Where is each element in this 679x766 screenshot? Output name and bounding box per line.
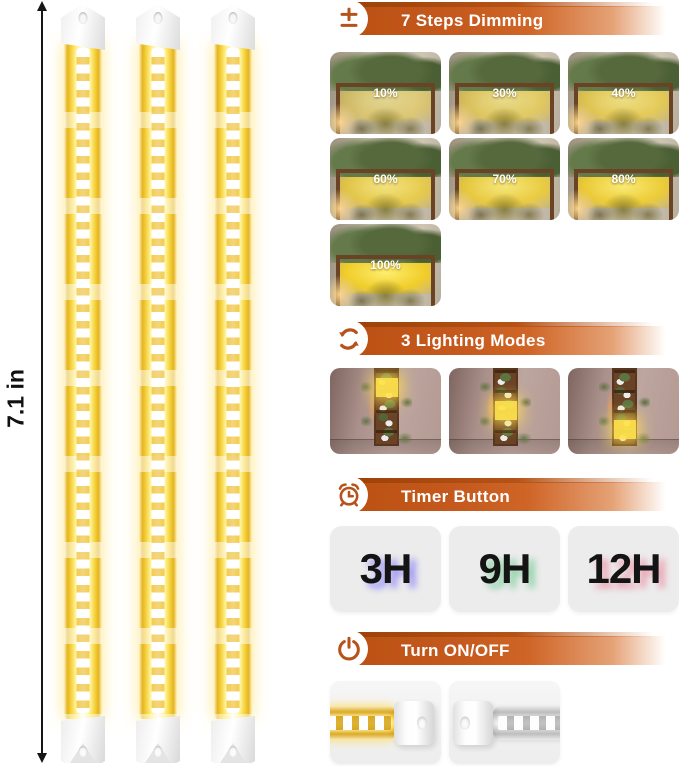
dim-percent-label: 60% [330,172,441,186]
plus-minus-icon [330,0,368,38]
section-title: 3 Lighting Modes [401,331,546,351]
led-tube [139,42,177,719]
dimming-thumb: 100% [330,224,441,306]
section-header-timer: Timer Button [330,478,679,511]
header-banner: 3 Lighting Modes [345,326,679,355]
header-banner: Timer Button [345,482,679,511]
mode-thumb-top-lit [330,368,441,454]
timer-option-9h: 9H [449,526,560,612]
bar-closeup-off [493,706,560,740]
dimming-thumb: 60% [330,138,441,220]
led-bar [136,4,180,763]
bar-top-cap [211,4,255,50]
section-header-power: Turn ON/OFF [330,632,679,665]
mode-thumbnails [330,368,679,454]
dimming-thumb: 10% [330,52,441,134]
mode-thumb-middle-lit [449,368,560,454]
dimming-thumb: 70% [449,138,560,220]
mounting-hole [154,12,163,24]
lit-shelf-section [614,420,636,439]
bar-top-cap [136,4,180,50]
mounting-hole [79,746,88,757]
power-thumb-off [449,681,560,764]
led-tube [214,42,252,719]
section-header-modes: 3 Lighting Modes [330,322,679,355]
dim-percent-label: 10% [330,86,441,100]
header-banner: 7 Steps Dimming [345,6,679,35]
dim-percent-label: 80% [568,172,679,186]
mounting-hole [229,12,238,24]
dimming-thumb: 30% [449,52,560,134]
power-thumb-on [330,681,441,764]
mounting-hole [79,12,88,24]
dim-percent-label: 30% [449,86,560,100]
section-title: Turn ON/OFF [401,641,510,661]
dimming-thumbnails: 10% 30% 40% 60% 70% 80% [330,52,679,306]
section-title: Timer Button [401,487,510,507]
led-bar [61,4,105,763]
bar-bottom-cap [136,716,180,763]
mounting-hole [154,746,163,757]
lit-shelf-section [376,378,398,397]
mounting-hole [417,716,427,729]
header-banner: Turn ON/OFF [345,636,679,665]
section-title: 7 Steps Dimming [401,11,543,31]
timer-label: 12H [586,545,660,593]
dimming-thumb: 80% [568,138,679,220]
timer-label: 9H [479,545,531,593]
mode-thumb-bottom-lit [568,368,679,454]
timer-option-12h: 12H [568,526,679,612]
led-strip [77,48,90,713]
led-strip [227,48,240,713]
led-chips [330,716,391,730]
dimension-arrow [41,10,43,754]
led-strip [152,48,165,713]
cycle-arrows-icon [330,320,368,358]
features-panel: 7 Steps Dimming 10% 30% 40% [330,0,679,764]
dim-percent-label: 70% [449,172,560,186]
dimension-label: 7.1 in [3,356,30,442]
led-tube [64,42,102,719]
section-header-dimming: 7 Steps Dimming [330,2,679,35]
dimming-thumb: 40% [568,52,679,134]
dim-percent-label: 100% [330,258,441,272]
bar-bottom-cap [61,716,105,763]
bar-end-cap [394,701,434,745]
lit-shelf-section [495,401,517,420]
bar-closeup-on [330,706,396,740]
product-panel: 7.1 in [0,0,330,766]
bar-end-cap [453,701,493,745]
dim-percent-label: 40% [568,86,679,100]
alarm-clock-icon [330,476,368,514]
led-chips [498,716,560,730]
timer-options: 3H 9H 12H [330,526,679,612]
bar-top-cap [61,4,105,50]
power-thumbnails [330,681,679,764]
timer-option-3h: 3H [330,526,441,612]
timer-label: 3H [360,545,412,593]
mounting-hole [460,716,470,729]
mounting-hole [229,746,238,757]
led-bar [211,4,255,763]
power-icon [330,630,368,668]
bar-bottom-cap [211,716,255,763]
